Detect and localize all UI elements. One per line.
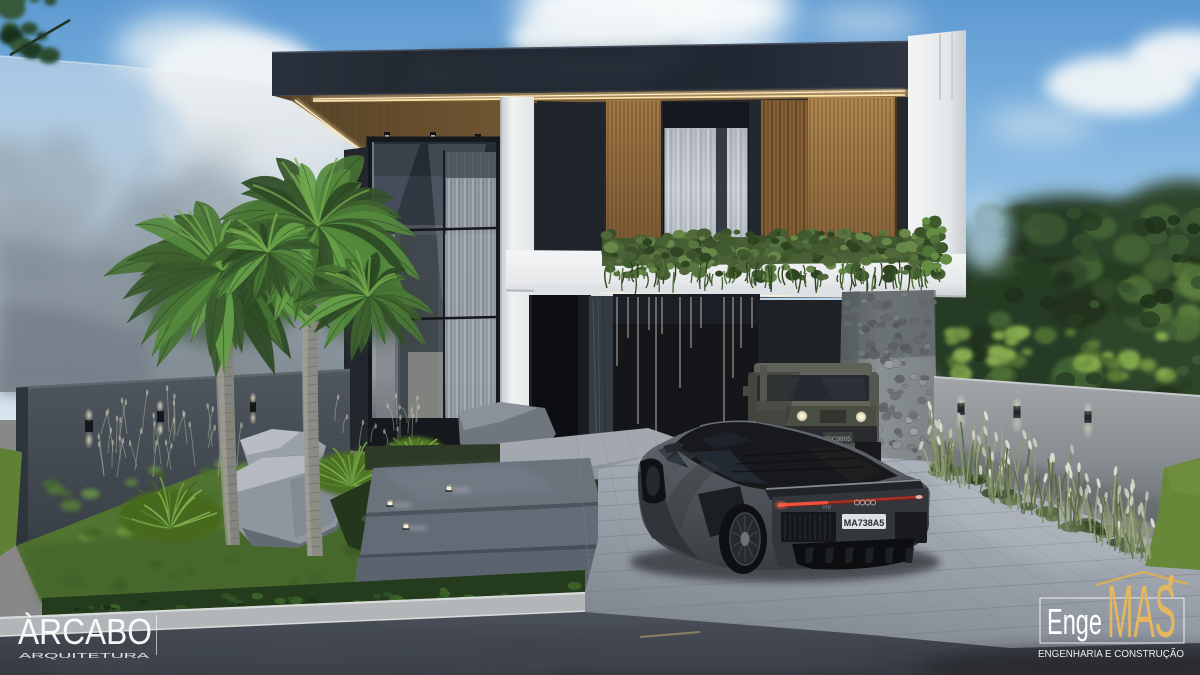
svg-text:R8: R8 bbox=[823, 505, 831, 511]
svg-text:MA738A5: MA738A5 bbox=[844, 518, 885, 528]
svg-text:ENGENHARIA E CONSTRUÇÃO: ENGENHARIA E CONSTRUÇÃO bbox=[1038, 647, 1184, 660]
svg-text:ÀRCABO: ÀRCABO bbox=[18, 611, 152, 652]
svg-text:MAS: MAS bbox=[1107, 570, 1176, 653]
svg-text:ARQUITETURA: ARQUITETURA bbox=[19, 653, 150, 660]
svg-text:Enge: Enge bbox=[1047, 601, 1102, 642]
